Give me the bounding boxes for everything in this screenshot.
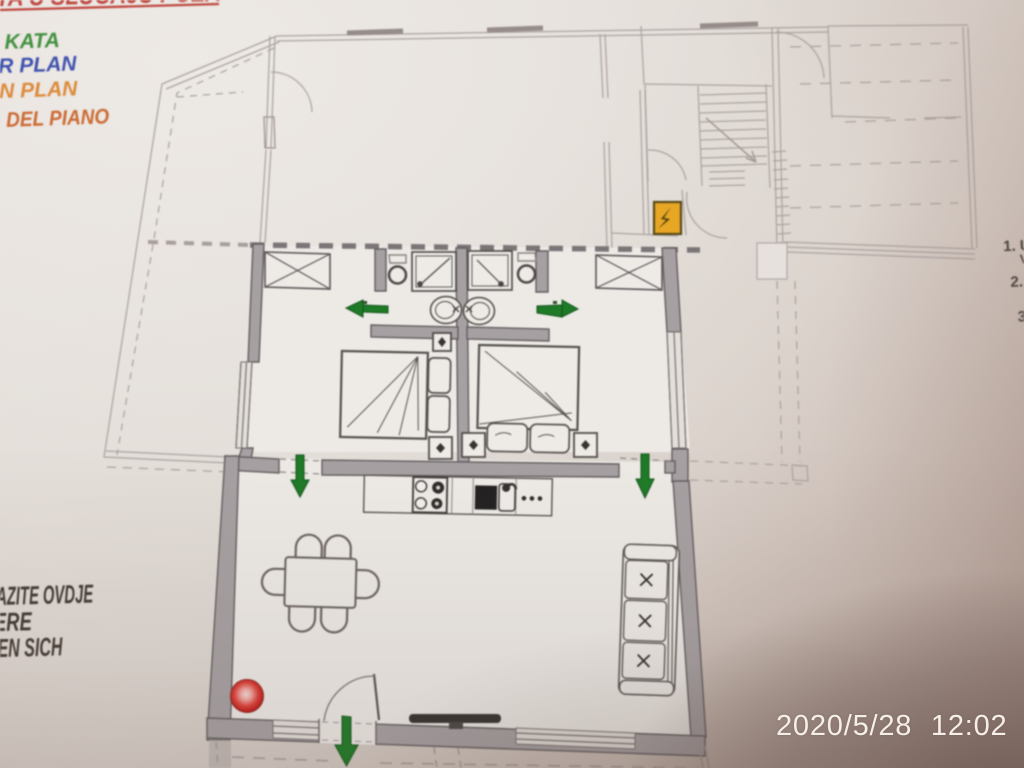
svg-text:EN SICH: EN SICH (0, 631, 64, 663)
svg-text:N PLAN: N PLAN (0, 77, 79, 103)
svg-text:DEL PIANO: DEL PIANO (6, 105, 110, 132)
svg-text:V: V (1019, 251, 1024, 266)
svg-text:R PLAN: R PLAN (0, 52, 78, 78)
svg-text:3. l: 3. l (1017, 308, 1024, 326)
svg-text:KATA: KATA (4, 29, 60, 54)
svg-text:2. (: 2. ( (1010, 273, 1024, 291)
